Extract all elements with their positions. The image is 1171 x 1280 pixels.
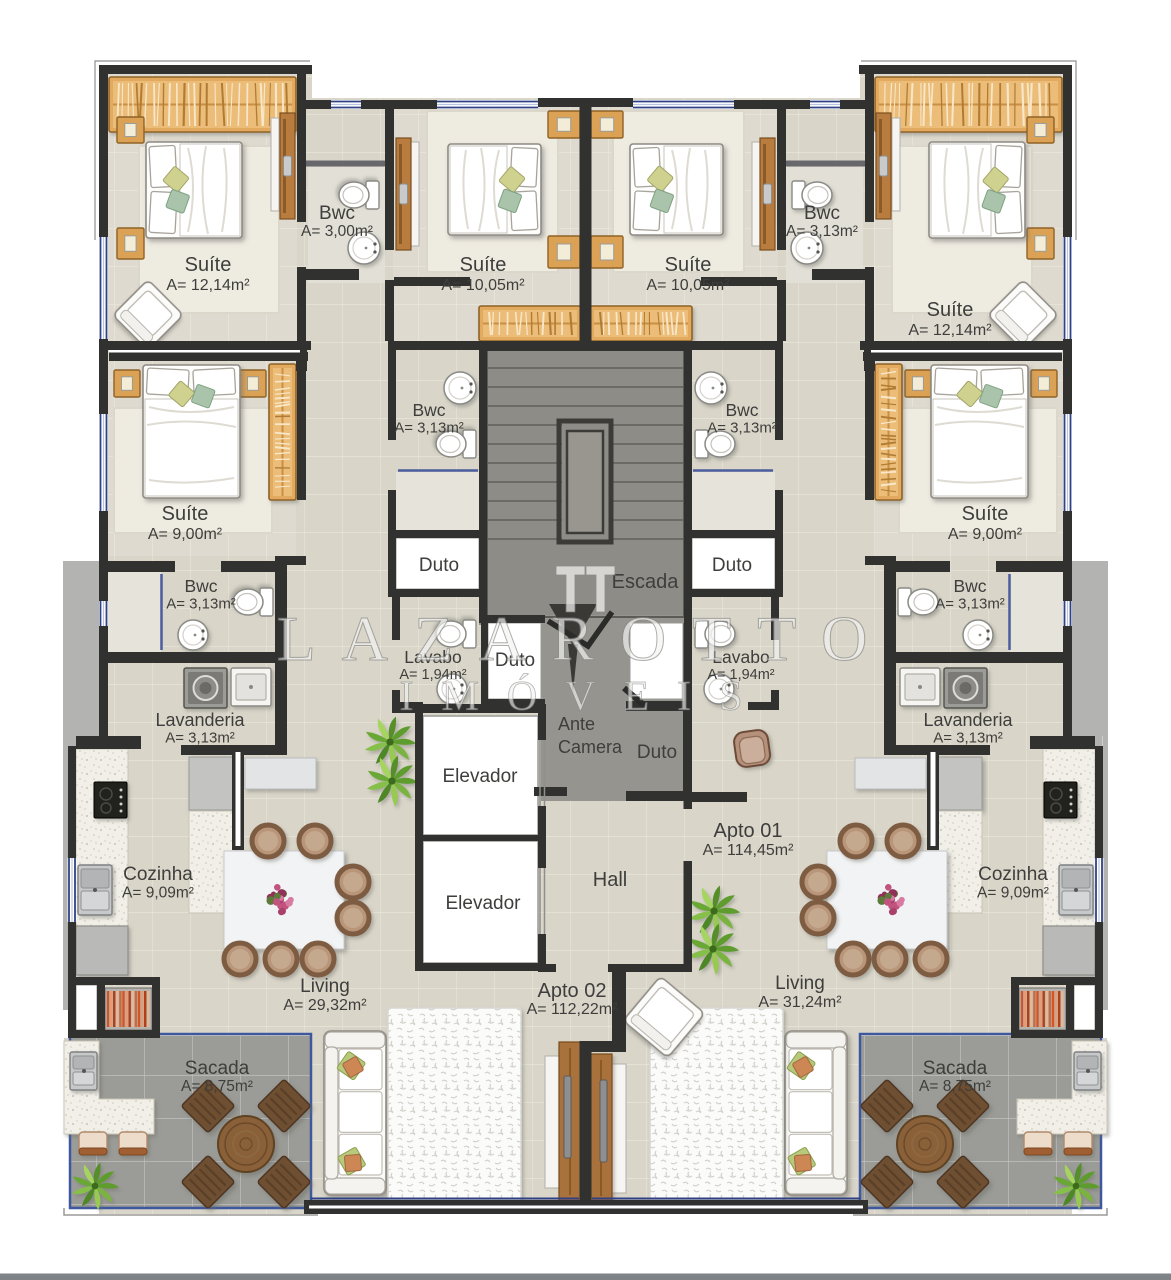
svg-text:Suíte: Suíte [665,254,712,276]
svg-text:A= 8,75m²: A= 8,75m² [919,1078,991,1095]
svg-text:Duto: Duto [419,555,459,576]
svg-text:A= 9,00m²: A= 9,00m² [148,526,223,543]
svg-text:Hall: Hall [593,869,627,891]
svg-text:A= 3,13m²: A= 3,13m² [394,420,464,437]
svg-text:A= 112,22m²: A= 112,22m² [527,1001,619,1018]
svg-text:Apto 02: Apto 02 [538,980,607,1002]
svg-text:IMÓVEIS: IMÓVEIS [400,673,771,720]
svg-text:Sacada: Sacada [923,1058,988,1079]
svg-text:Cozinha: Cozinha [123,864,193,885]
svg-text:Duto: Duto [637,742,677,763]
svg-text:Suíte: Suíte [962,503,1009,525]
svg-text:Sacada: Sacada [185,1058,250,1079]
svg-text:A= 9,09m²: A= 9,09m² [977,885,1049,902]
svg-text:Living: Living [300,976,350,997]
svg-text:Elevador: Elevador [443,766,519,787]
svg-text:Suíte: Suíte [185,254,232,276]
svg-text:Living: Living [775,973,825,994]
svg-text:Cozinha: Cozinha [978,864,1048,885]
svg-text:A= 3,00m²: A= 3,00m² [301,223,373,240]
svg-text:A= 9,00m²: A= 9,00m² [948,526,1023,543]
svg-text:A= 3,13m²: A= 3,13m² [165,730,235,747]
svg-text:Camera: Camera [558,737,623,757]
svg-text:Suíte: Suíte [927,299,974,321]
svg-text:Bwc: Bwc [725,400,758,420]
svg-text:A= 10,05m²: A= 10,05m² [646,277,730,294]
svg-text:A= 10,05m²: A= 10,05m² [441,277,525,294]
svg-text:A= 8,75m²: A= 8,75m² [181,1078,253,1095]
svg-text:Bwc: Bwc [804,203,840,224]
svg-text:Lavanderia: Lavanderia [923,710,1013,730]
svg-text:A= 29,32m²: A= 29,32m² [283,997,367,1014]
svg-text:Duto: Duto [712,555,752,576]
svg-text:Apto 01: Apto 01 [714,820,783,842]
svg-text:A= 9,09m²: A= 9,09m² [122,885,194,902]
svg-text:Elevador: Elevador [446,893,522,914]
svg-text:A= 3,13m²: A= 3,13m² [935,596,1005,613]
svg-text:A= 3,13m²: A= 3,13m² [707,420,777,437]
svg-text:A= 114,45m²: A= 114,45m² [703,842,795,859]
svg-text:A= 3,13m²: A= 3,13m² [786,223,858,240]
svg-text:Bwc: Bwc [953,576,986,596]
svg-text:Bwc: Bwc [319,203,355,224]
svg-text:A= 12,14m²: A= 12,14m² [166,277,250,294]
svg-text:A= 12,14m²: A= 12,14m² [908,322,992,339]
svg-text:Bwc: Bwc [184,576,217,596]
svg-text:Escada: Escada [612,571,680,593]
svg-text:LAZAROTTO: LAZAROTTO [277,603,894,674]
svg-text:A= 31,24m²: A= 31,24m² [758,994,842,1011]
svg-text:Suíte: Suíte [460,254,507,276]
svg-text:Lavanderia: Lavanderia [155,710,245,730]
svg-text:Bwc: Bwc [412,400,445,420]
svg-text:A= 3,13m²: A= 3,13m² [166,596,236,613]
svg-text:A= 3,13m²: A= 3,13m² [933,730,1003,747]
svg-text:Suíte: Suíte [162,503,209,525]
